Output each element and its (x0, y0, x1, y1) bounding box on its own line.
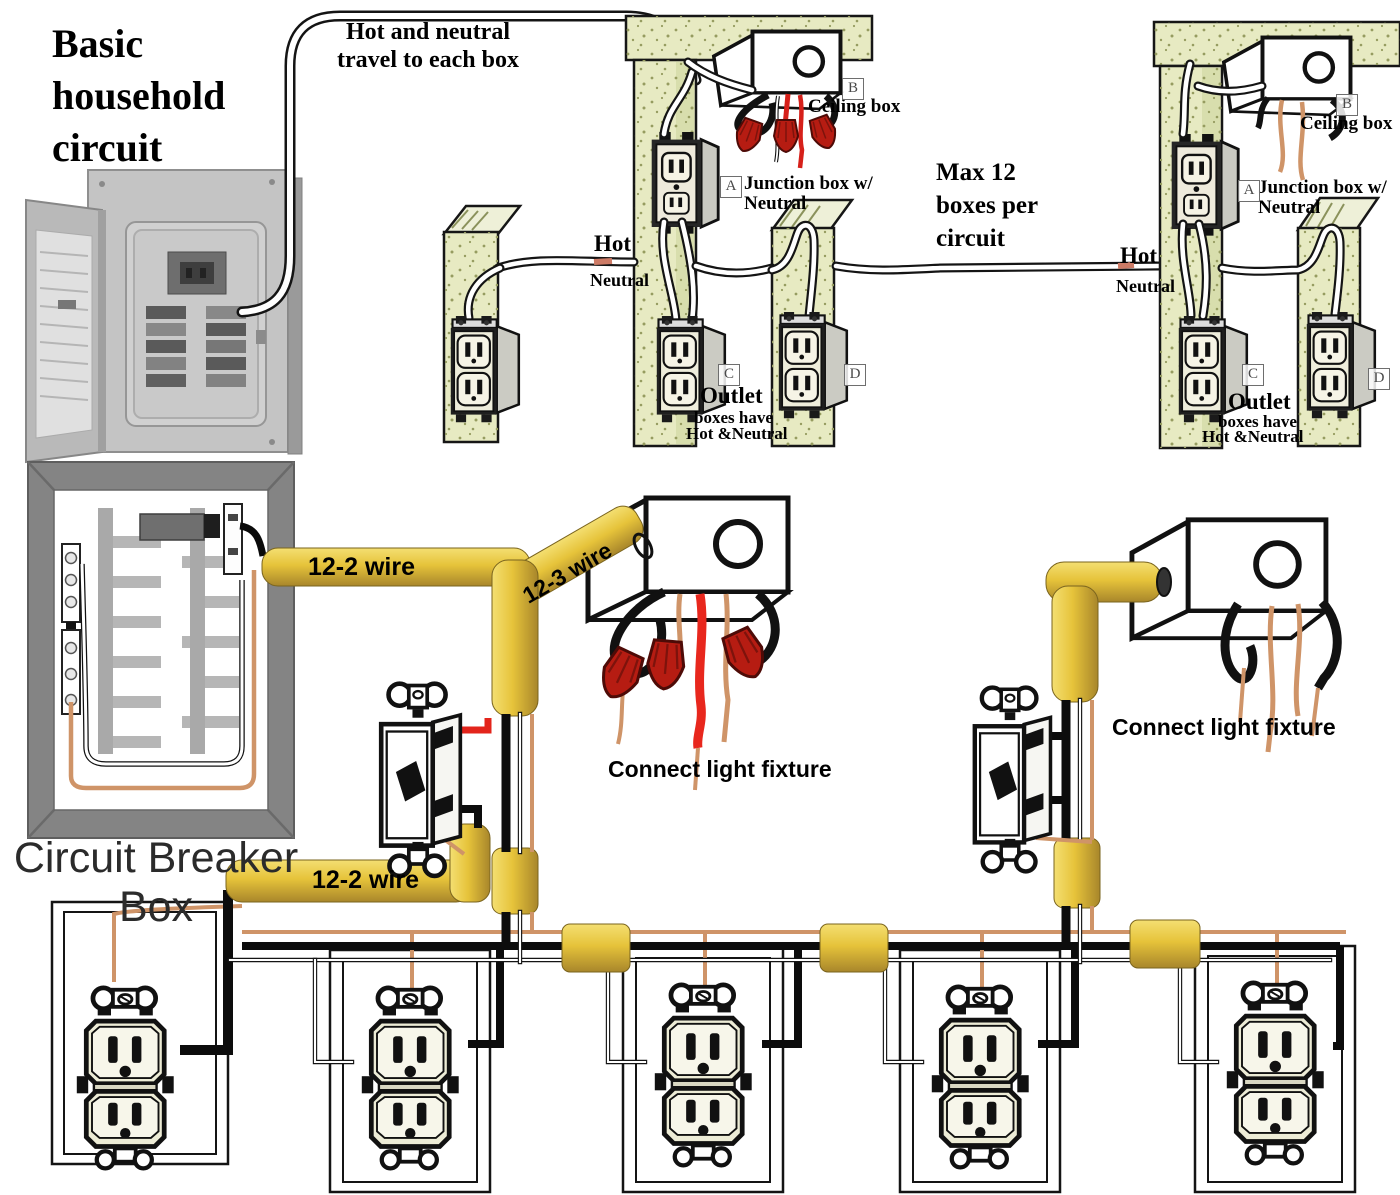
hot-label-right: Hot (1120, 243, 1157, 269)
max-boxes-note: Max 12 boxes per circuit (936, 156, 1076, 255)
badge-c-right: C (1242, 364, 1264, 386)
receptacle-1 (77, 988, 174, 1169)
diagram-canvas (0, 0, 1400, 1195)
junction-box-label-left: Junction box w/ Neutral (744, 174, 873, 214)
ceiling-box-right (1224, 38, 1351, 180)
receptacle-4 (932, 987, 1029, 1168)
receptacle-3 (655, 985, 752, 1166)
breaker-panel-photo (26, 170, 302, 462)
outlet-left-stud (451, 316, 519, 422)
breaker-box-diagram (28, 462, 294, 838)
connect-fixture-left-label: Connect light fixture (608, 756, 832, 783)
travel-note: Hot and neutral travel to each box (288, 18, 568, 74)
outlet-note-left-3: Hot &Neutral (686, 424, 788, 444)
junction-box-label-right: Junction box w/ Neutral (1258, 178, 1387, 218)
ceiling-box-label-right: Ceiling box (1300, 113, 1392, 135)
connect-fixture-right-label: Connect light fixture (1112, 714, 1336, 741)
breaker-box-label: Circuit Breaker Box (0, 834, 312, 932)
badge-a-left: A (720, 176, 742, 198)
badge-d-left: D (844, 364, 866, 386)
toggle-switch-right (975, 688, 1051, 872)
run-cable (836, 265, 1160, 270)
badge-d-right: D (1368, 368, 1390, 390)
cable-12-2-top-label: 12-2 wire (308, 553, 415, 582)
outlet-d-left (779, 312, 847, 418)
wall-group-right (1154, 22, 1400, 448)
wall-group-left (444, 16, 872, 446)
badge-b-right: B (1336, 94, 1358, 116)
neutral-label-left: Neutral (590, 270, 649, 291)
toggle-switch-left (381, 684, 460, 876)
cable-entry-right (1157, 568, 1171, 596)
neutral-label-right: Neutral (1116, 276, 1175, 297)
main-breaker (140, 514, 204, 540)
receptacle-2 (362, 988, 459, 1169)
receptacle-5 (1227, 983, 1324, 1164)
hot-conductor-mark-left (594, 261, 612, 262)
outlet-note-right-3: Hot &Neutral (1202, 427, 1304, 447)
hot-label-left: Hot (594, 231, 631, 257)
cable-12-2-bottom-label: 12-2 wire (312, 866, 419, 895)
outlet-note-left-1: Outlet (700, 383, 763, 409)
diagram-title: Basic household circuit (52, 18, 312, 174)
bottom-outlets (77, 983, 1324, 1169)
outlet-d-right (1307, 312, 1375, 418)
wiring-diagram: Basic household circuit Hot and neutral … (0, 0, 1400, 1195)
badge-a-right: A (1238, 180, 1260, 202)
badge-b-left: B (842, 78, 864, 100)
